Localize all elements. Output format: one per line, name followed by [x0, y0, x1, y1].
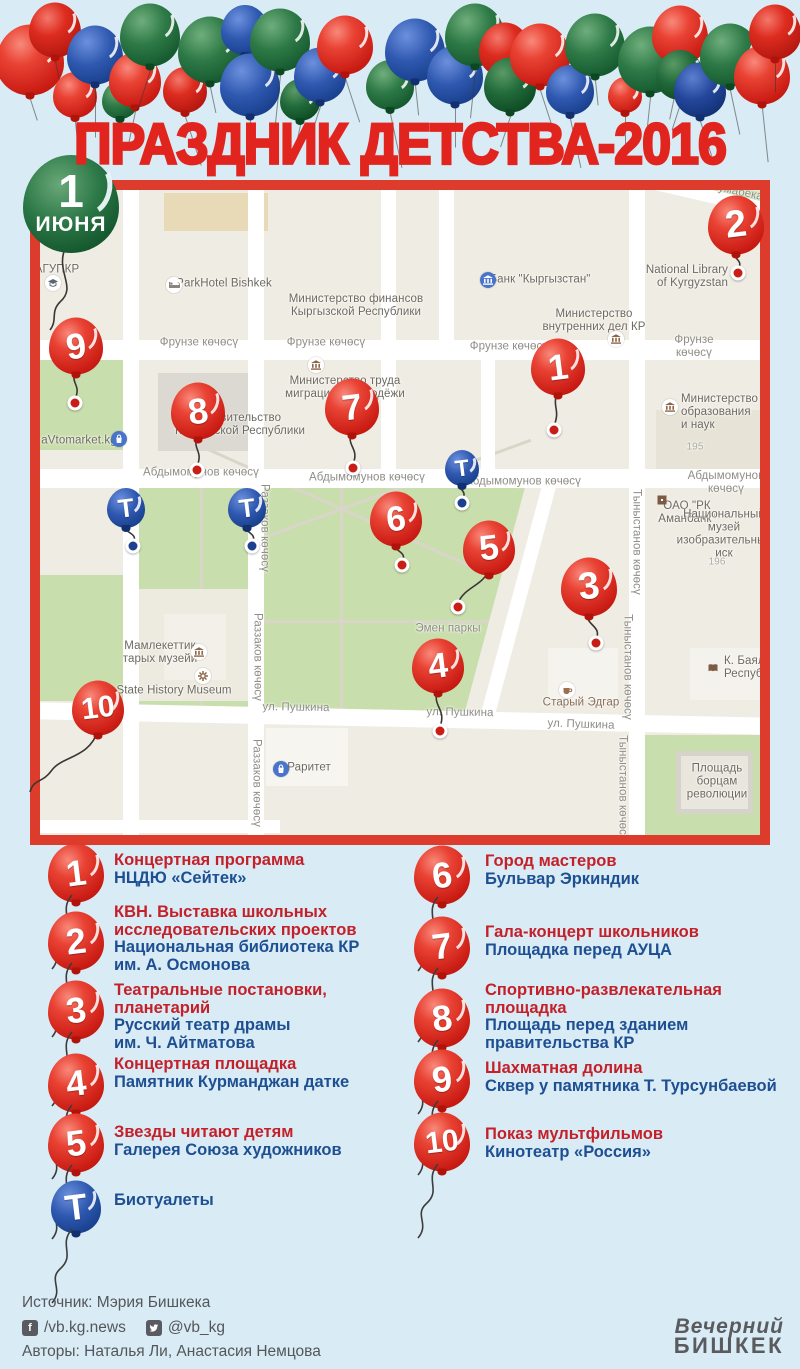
legend-subtitle: Площадка перед АУЦА: [485, 942, 800, 960]
twitter-handle: @vb_kg: [168, 1319, 225, 1337]
legend-subtitle: Площадь перед зданием правительства КР: [485, 1017, 800, 1052]
footer: Источник: Мэрия Бишкека f /vb.kg.news @v…: [22, 1294, 321, 1361]
twitter-icon: [146, 1320, 162, 1336]
map-marker-9: 9: [49, 318, 103, 375]
marker-dot-9: [68, 396, 83, 411]
balloon-string: [595, 80, 599, 105]
event-map: Фрунзе көчөсүФрунзе көчөсүФрунзе көчөсүФ…: [30, 180, 770, 845]
legend-text-Т: Биотуалеты: [114, 1192, 434, 1210]
marker-dot-Т: [245, 539, 260, 554]
legend-balloon-string: [406, 1162, 446, 1247]
legend-title: Театральные постановки, планетарий: [114, 982, 434, 1017]
date-day: 1: [58, 171, 84, 212]
marker-number: 4: [409, 636, 467, 697]
legend-subtitle: Русский театр драмы им. Ч. Айтматова: [114, 1017, 434, 1052]
legend-title: Шахматная долина: [485, 1060, 800, 1078]
map-marker-2: 2: [708, 196, 764, 255]
legend-subtitle: Памятник Курманджан датке: [114, 1074, 434, 1092]
legend-text-5: Звезды читают детямГалерея Союза художни…: [114, 1124, 434, 1159]
map-marker-1: 1: [531, 339, 585, 396]
legend-subtitle: Сквер у памятника Т. Турсунбаевой: [485, 1078, 800, 1096]
marker-number: Т: [226, 486, 269, 530]
balloon-knot: [591, 74, 600, 81]
marker-string-10: [30, 730, 98, 792]
legend-text-1: Концертная программаНЦДЮ «Сейтек»: [114, 852, 434, 887]
legend-text-2: КВН. Выставка школьных исследовательских…: [114, 904, 434, 975]
map-marker-7: 7: [325, 379, 379, 436]
map-marker-Т: Т: [107, 488, 145, 528]
map-marker-4: 4: [412, 639, 464, 694]
poster-title: ПРАЗДНИК ДЕТСТВА-2016: [0, 116, 800, 173]
marker-number: 8: [168, 379, 229, 442]
legend-subtitle: Национальная библиотека КР им. А. Осмоно…: [114, 939, 434, 974]
marker-dot-Т: [126, 539, 141, 554]
decor-balloon: [317, 16, 373, 75]
legend-text-6: Город мастеровБульвар Эркиндик: [485, 853, 800, 888]
legend-text-4: Концертная площадкаПамятник Курманджан д…: [114, 1056, 434, 1091]
balloon-knot: [646, 91, 655, 98]
marker-dot-Т: [455, 496, 470, 511]
balloon-knot: [276, 69, 285, 76]
balloon-string: [775, 64, 776, 93]
marker-number: Т: [105, 486, 148, 530]
marker-dot-2: [731, 266, 746, 281]
map-marker-3: 3: [561, 558, 617, 617]
marker-number: 10: [69, 678, 127, 739]
balloon-knot: [471, 64, 480, 71]
legend-balloon-Т: Т: [51, 1181, 101, 1234]
map-marker-Т: Т: [228, 488, 266, 528]
marker-dot-1: [547, 423, 562, 438]
legend-title: Показ мультфильмов: [485, 1126, 800, 1144]
marker-dot-8: [190, 463, 205, 478]
map-marker-8: 8: [171, 383, 225, 440]
marker-number: 3: [558, 554, 621, 619]
legend-text-8: Спортивно-развлекательная площадкаПлощад…: [485, 982, 800, 1053]
map-marker-10: 10: [72, 681, 124, 736]
source-line: Источник: Мэрия Бишкека: [22, 1294, 321, 1312]
legend-title: Звезды читают детям: [114, 1124, 434, 1142]
marker-number: 9: [46, 314, 107, 377]
legend-title: Спортивно-развлекательная площадка: [485, 982, 800, 1017]
legend-text-10: Показ мультфильмовКинотеатр «Россия»: [485, 1126, 800, 1161]
marker-dot-3: [589, 636, 604, 651]
date-month: ИЮНЯ: [35, 213, 106, 237]
marker-number: 2: [705, 192, 768, 257]
balloon-knot: [771, 57, 780, 64]
map-marker-5: 5: [463, 521, 515, 576]
balloon-knot: [758, 102, 767, 109]
marker-number: 5: [460, 518, 518, 579]
facebook-handle: /vb.kg.news: [44, 1319, 126, 1337]
marker-number: 6: [367, 489, 425, 550]
marker-dot-5: [451, 600, 466, 615]
infographic-poster: ПРАЗДНИК ДЕТСТВА-2016 Фрунзе көчөсүФрунз…: [0, 0, 800, 1369]
facebook-icon: f: [22, 1320, 38, 1336]
publisher-logo: Вечерний БИШКЕК: [674, 1316, 784, 1357]
legend-text-3: Театральные постановки, планетарийРусски…: [114, 982, 434, 1053]
marker-dot-7: [346, 461, 361, 476]
marker-number: 1: [528, 335, 589, 398]
legend-title: Биотуалеты: [114, 1192, 434, 1210]
legend-title: Концертная программа: [114, 852, 434, 870]
authors-line: Авторы: Наталья Ли, Анастасия Немцова: [22, 1343, 321, 1361]
legend-text-7: Гала-концерт школьниковПлощадка перед АУ…: [485, 924, 800, 959]
map-marker-layer: 1 ИЮНЯ 12345678910ТТТ: [40, 190, 760, 835]
balloon-knot: [411, 79, 420, 86]
legend-title: Город мастеров: [485, 853, 800, 871]
marker-number: Т: [443, 448, 481, 488]
decor-balloon: [120, 4, 180, 67]
marker-number: 7: [322, 375, 383, 438]
legend-subtitle: Кинотеатр «Россия»: [485, 1144, 800, 1162]
map-marker-6: 6: [370, 492, 422, 547]
legend-subtitle: Галерея Союза художников: [114, 1142, 434, 1160]
map-marker-Т: Т: [445, 450, 479, 486]
publisher-logo-line2: БИШКЕК: [674, 1335, 784, 1357]
marker-dot-4: [433, 724, 448, 739]
balloon-string: [210, 87, 216, 113]
marker-dot-6: [395, 558, 410, 573]
balloon-knot: [91, 82, 100, 89]
legend-title: Концертная площадка: [114, 1056, 434, 1074]
decor-balloon: [565, 14, 625, 77]
date-badge-string: [50, 246, 67, 330]
legend-subtitle: Бульвар Эркиндик: [485, 871, 800, 889]
legend-subtitle: НЦДЮ «Сейтек»: [114, 870, 434, 888]
legend-title: Гала-концерт школьников: [485, 924, 800, 942]
legend-text-9: Шахматная долинаСквер у памятника Т. Тур…: [485, 1060, 800, 1095]
balloon-knot: [451, 102, 460, 109]
legend-title: КВН. Выставка школьных исследовательских…: [114, 904, 434, 939]
balloon-string: [415, 85, 419, 115]
decor-balloon: [749, 5, 800, 60]
